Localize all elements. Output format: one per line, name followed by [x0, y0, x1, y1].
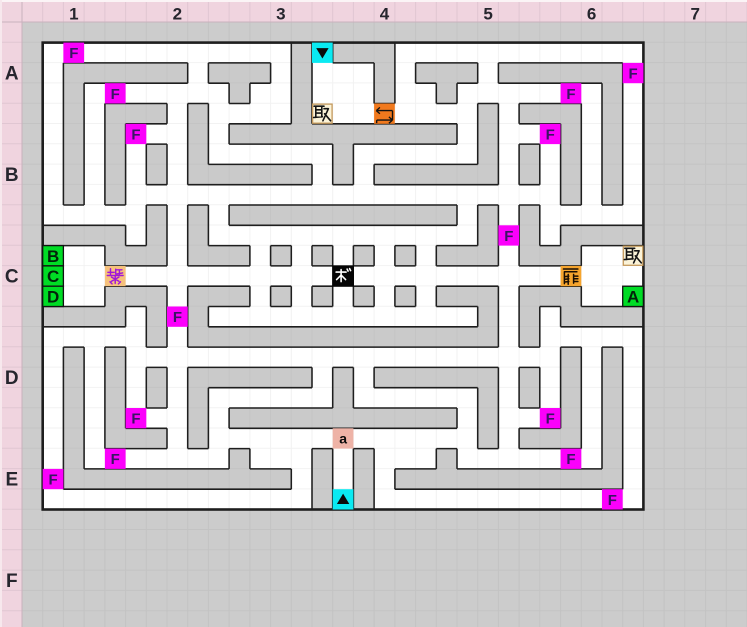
svg-text:1: 1 — [69, 5, 78, 24]
svg-text:D: D — [47, 288, 59, 307]
svg-text:A: A — [627, 288, 639, 307]
svg-text:F: F — [111, 451, 120, 468]
svg-text:F: F — [546, 126, 555, 143]
svg-text:5: 5 — [483, 5, 492, 24]
svg-text:F: F — [131, 126, 140, 143]
svg-text:F: F — [6, 571, 18, 592]
svg-text:C: C — [47, 267, 59, 286]
svg-text:F: F — [546, 411, 555, 428]
svg-text:4: 4 — [380, 5, 390, 24]
svg-text:2: 2 — [173, 5, 182, 24]
svg-text:B: B — [47, 247, 59, 266]
svg-text:F: F — [566, 451, 575, 468]
svg-text:a: a — [339, 431, 347, 447]
svg-text:F: F — [629, 66, 638, 83]
svg-text:F: F — [131, 411, 140, 428]
svg-text:F: F — [566, 86, 575, 103]
svg-text:A: A — [5, 64, 19, 85]
svg-text:D: D — [5, 368, 19, 389]
svg-text:F: F — [608, 492, 617, 509]
svg-text:F: F — [173, 309, 182, 326]
svg-text:E: E — [5, 470, 18, 491]
svg-text:F: F — [49, 471, 58, 488]
svg-text:3: 3 — [276, 5, 285, 24]
svg-text:F: F — [111, 86, 120, 103]
svg-text:7: 7 — [690, 5, 699, 24]
svg-text:C: C — [5, 267, 19, 288]
svg-text:B: B — [5, 165, 19, 186]
svg-text:6: 6 — [587, 5, 596, 24]
svg-text:F: F — [504, 228, 513, 245]
svg-text:F: F — [69, 45, 78, 62]
